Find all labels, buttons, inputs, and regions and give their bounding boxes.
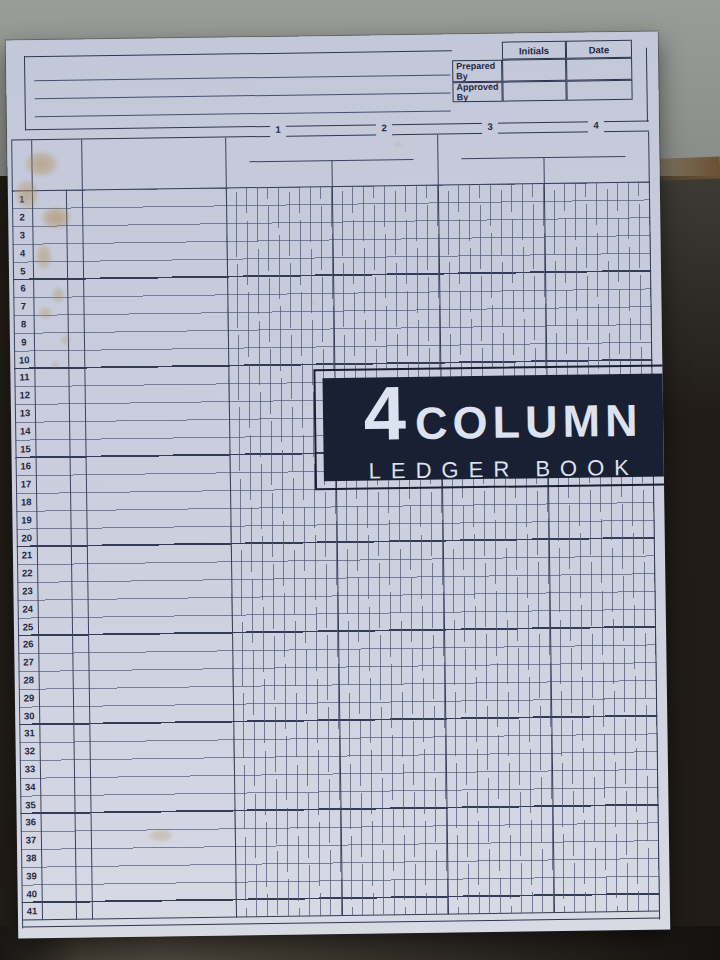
row-number: 32 — [20, 742, 40, 760]
row-number: 13 — [15, 404, 35, 422]
stain — [393, 141, 402, 148]
stain — [60, 334, 72, 346]
approval-initials-cell — [502, 59, 566, 82]
row-number: 2 — [12, 208, 32, 226]
row-number: 35 — [20, 795, 40, 813]
row-number: 19 — [16, 511, 36, 529]
column-number-label: 2 — [376, 118, 392, 136]
row-number: 14 — [15, 422, 35, 440]
header-box-right-border — [646, 48, 648, 122]
approval-row-label: Approved By — [452, 82, 502, 103]
row-number: 38 — [21, 849, 41, 867]
row-number: 15 — [15, 439, 35, 457]
band-divider — [437, 135, 439, 185]
row-number: 24 — [18, 600, 38, 618]
column-number-label: 1 — [270, 120, 286, 138]
approval-header-initials: Initials — [502, 41, 566, 60]
row-number: 21 — [17, 546, 37, 564]
stain — [23, 150, 59, 178]
row-number: 31 — [19, 724, 39, 742]
title-banner: 4 COLUMN LEDGER BOOK — [323, 373, 671, 481]
row-number: 23 — [17, 582, 37, 600]
stain — [309, 298, 316, 304]
row-number: 39 — [21, 867, 41, 885]
row-number: 36 — [21, 813, 41, 831]
ledger-page: InitialsDatePrepared ByApproved By 1234 … — [6, 31, 670, 938]
row-number: 26 — [18, 635, 38, 653]
row-number: 25 — [18, 617, 38, 635]
banner-title-line: 4 COLUMN — [363, 372, 643, 452]
column-number-label: 3 — [482, 117, 498, 135]
header-box-bottom-border — [25, 121, 649, 131]
stain — [50, 360, 60, 370]
row-number: 4 — [13, 244, 33, 262]
row-number: 3 — [12, 226, 32, 244]
row-number: 10 — [14, 350, 34, 368]
row-number: 18 — [16, 493, 36, 511]
subheader-tick — [331, 160, 332, 186]
row-number: 28 — [19, 671, 39, 689]
banner-subtitle: LEDGER BOOK — [369, 457, 639, 483]
row-number: 8 — [14, 315, 34, 333]
approval-row-label: Prepared By — [452, 60, 502, 83]
row-number: 5 — [13, 261, 33, 279]
writing-line — [35, 110, 451, 117]
row-number: 27 — [18, 653, 38, 671]
column-header-rule — [11, 131, 649, 141]
row-number: 7 — [13, 297, 33, 315]
approval-date-cell — [566, 80, 632, 101]
approval-header-date: Date — [566, 40, 632, 59]
header-box-top-border — [24, 50, 452, 57]
banner-word: COLUMN — [415, 398, 643, 446]
writing-line — [35, 92, 451, 99]
row-number: 16 — [16, 457, 36, 475]
stain — [14, 178, 40, 210]
row-number: 33 — [20, 760, 40, 778]
row-number: 29 — [19, 689, 39, 707]
writing-line — [34, 74, 450, 81]
approval-date-cell — [566, 58, 632, 81]
row-number: 9 — [14, 333, 34, 351]
row-number: 41 — [22, 902, 42, 920]
banner-number: 4 — [363, 375, 406, 452]
background-shade — [656, 176, 720, 416]
row-number: 40 — [22, 884, 42, 902]
stain — [35, 243, 53, 271]
row-number: 17 — [16, 475, 36, 493]
column-number-label: 4 — [588, 115, 604, 133]
row-number: 34 — [20, 778, 40, 796]
row-number: 22 — [17, 564, 37, 582]
subheader-tick — [543, 157, 544, 183]
row-number: 11 — [14, 368, 34, 386]
row-number: 6 — [13, 279, 33, 297]
approval-initials-cell — [502, 81, 566, 102]
row-number: 30 — [19, 706, 39, 724]
row-number: 37 — [21, 831, 41, 849]
band-divider — [81, 140, 83, 190]
band-divider — [225, 138, 227, 188]
row-number: 20 — [17, 528, 37, 546]
header-box-left-border — [24, 56, 26, 130]
stain — [51, 286, 65, 304]
row-number: 12 — [15, 386, 35, 404]
